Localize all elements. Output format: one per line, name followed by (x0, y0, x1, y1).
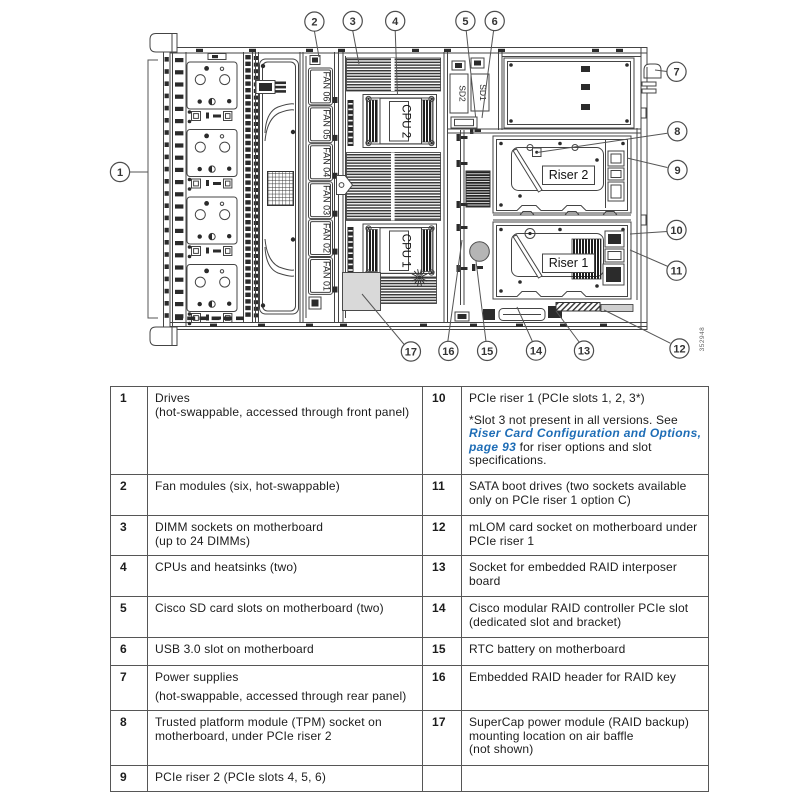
svg-text:16: 16 (442, 346, 454, 358)
svg-text:14: 14 (530, 346, 543, 358)
svg-text:13: 13 (578, 346, 590, 358)
svg-text:2: 2 (311, 17, 317, 29)
svg-text:4: 4 (392, 16, 399, 28)
svg-text:6: 6 (492, 16, 498, 28)
svg-text:SD2: SD2 (458, 85, 468, 102)
svg-text:15: 15 (481, 346, 493, 358)
svg-text:1: 1 (117, 167, 123, 179)
svg-text:7: 7 (673, 67, 679, 79)
svg-text:12: 12 (673, 343, 685, 355)
svg-text:FAN 06: FAN 06 (322, 71, 332, 101)
svg-text:CPU 1: CPU 1 (400, 234, 412, 268)
svg-text:FAN 04: FAN 04 (322, 147, 332, 177)
svg-text:FAN 02: FAN 02 (322, 223, 332, 253)
svg-text:Riser 2: Riser 2 (549, 168, 589, 182)
svg-text:FAN 03: FAN 03 (322, 185, 332, 215)
svg-text:352948: 352948 (699, 327, 706, 352)
svg-text:11: 11 (671, 266, 683, 278)
svg-text:Riser 1: Riser 1 (549, 256, 589, 270)
svg-text:10: 10 (670, 225, 682, 237)
svg-text:CPU 2: CPU 2 (400, 104, 412, 138)
svg-text:FAN 01: FAN 01 (322, 261, 332, 291)
svg-text:17: 17 (405, 346, 417, 358)
svg-text:3: 3 (350, 16, 356, 28)
svg-text:5: 5 (462, 16, 468, 28)
svg-text:8: 8 (674, 126, 680, 138)
svg-text:FAN 05: FAN 05 (322, 109, 332, 139)
svg-text:9: 9 (674, 165, 680, 177)
